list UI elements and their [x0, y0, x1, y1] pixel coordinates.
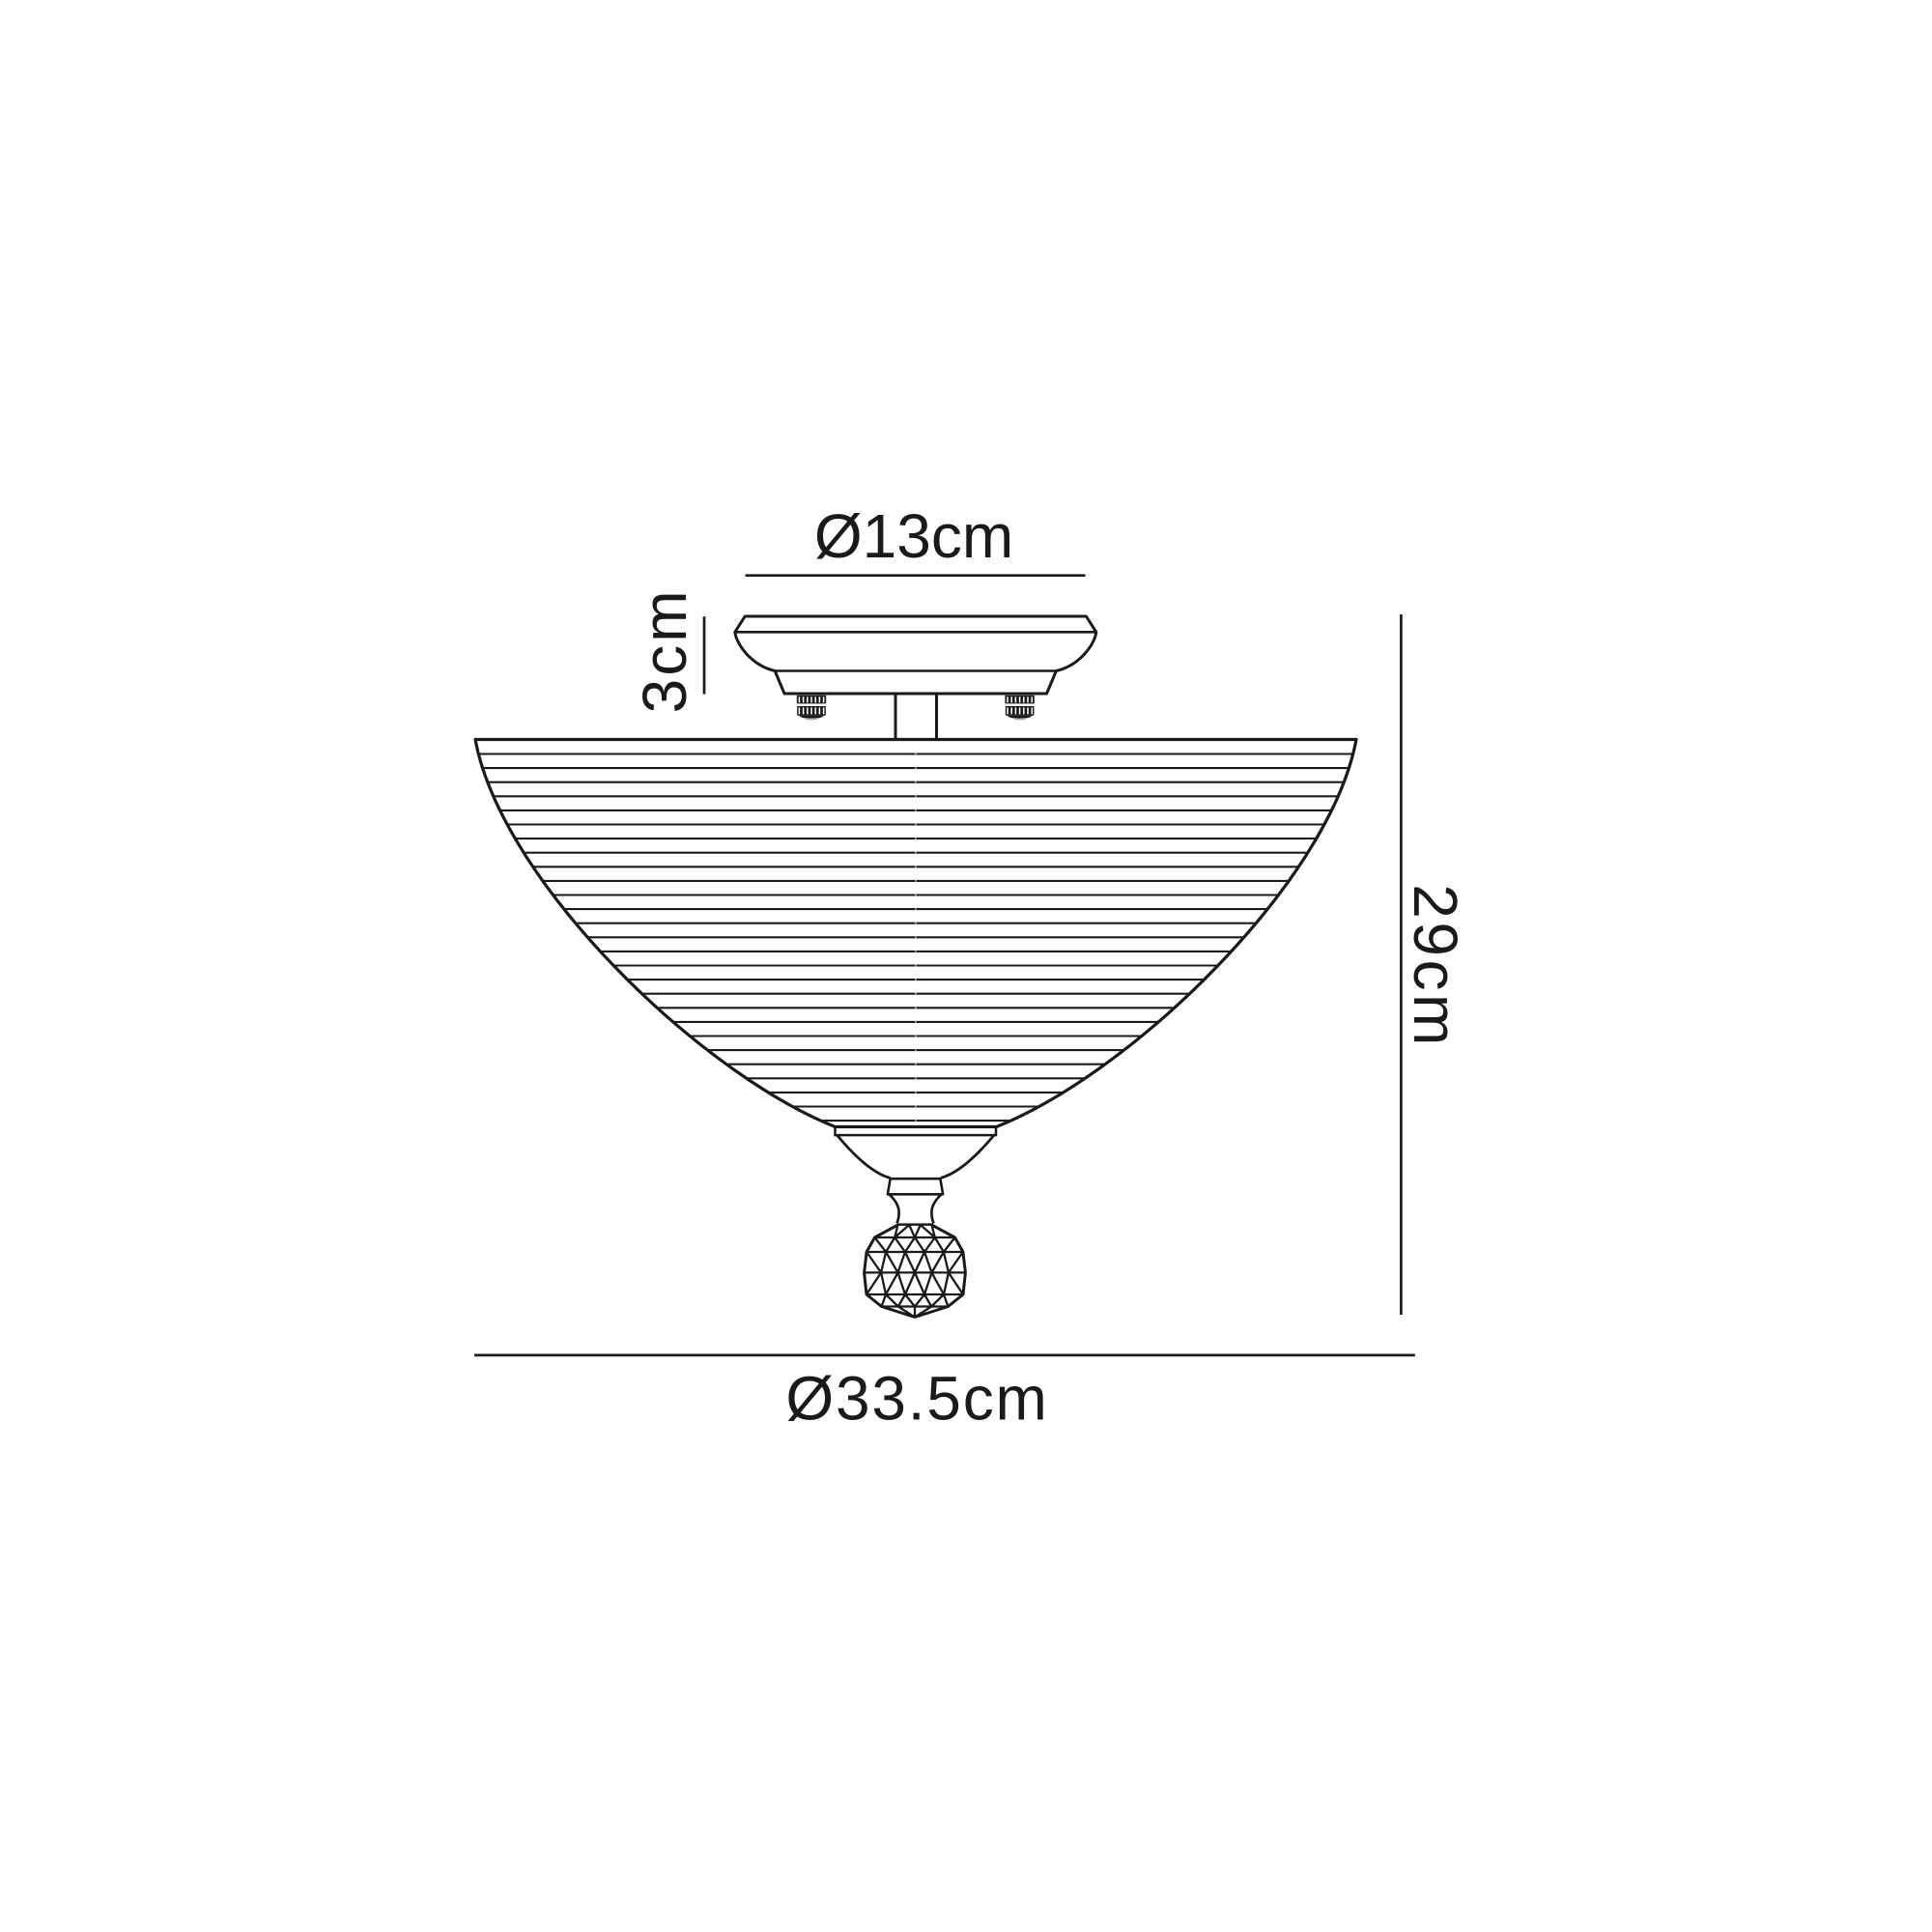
svg-text:Ø33.5cm: Ø33.5cm: [785, 1364, 1048, 1434]
svg-text:Ø13cm: Ø13cm: [814, 501, 1013, 571]
svg-text:29cm: 29cm: [1401, 884, 1470, 1049]
svg-text:3cm: 3cm: [630, 587, 699, 713]
